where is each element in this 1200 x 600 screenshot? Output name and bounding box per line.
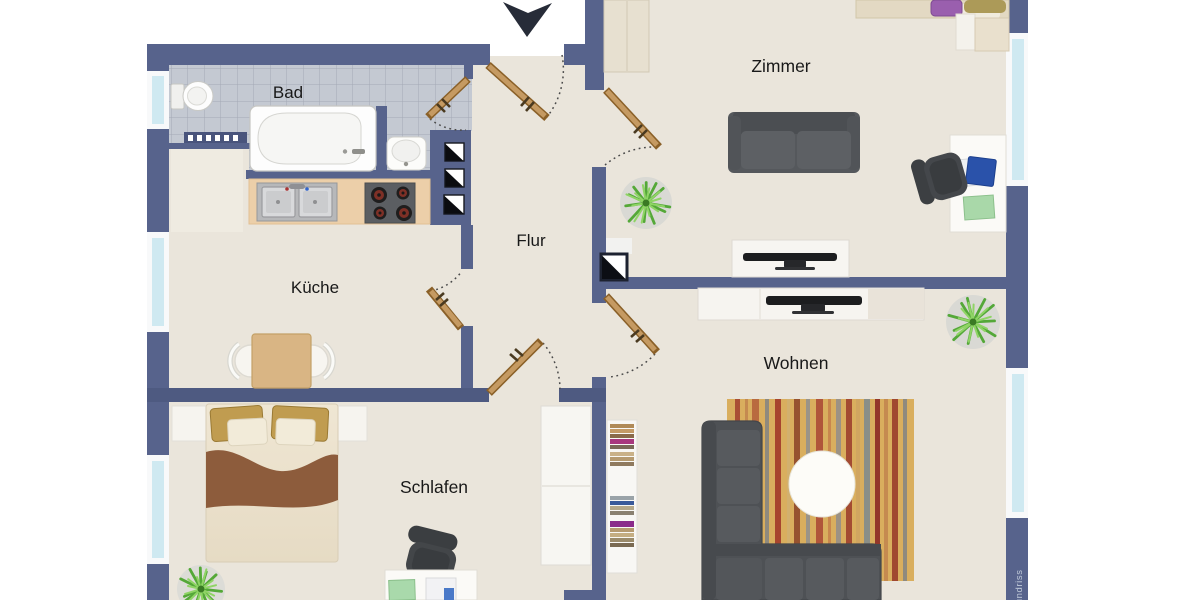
svg-text:Zimmer: Zimmer	[751, 56, 810, 76]
svg-text:Flur: Flur	[516, 231, 546, 250]
svg-text:Küche: Küche	[291, 278, 339, 297]
svg-text:Schlafen: Schlafen	[400, 477, 468, 497]
svg-text:Grundriss: Grundriss	[1014, 569, 1025, 600]
svg-text:Wohnen: Wohnen	[764, 353, 829, 373]
svg-text:Bad: Bad	[273, 83, 303, 102]
